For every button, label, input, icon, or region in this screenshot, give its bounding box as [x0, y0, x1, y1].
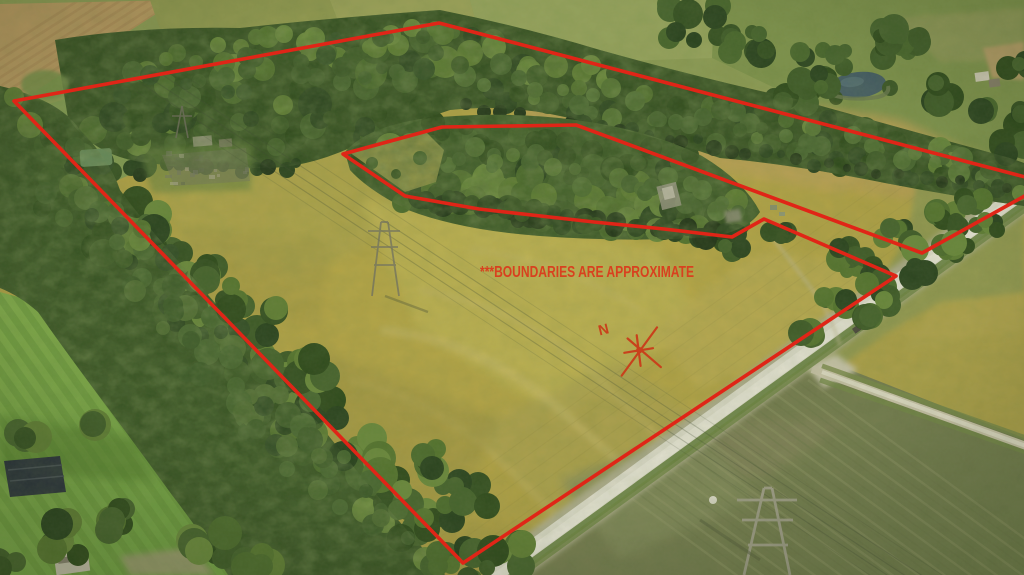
- svg-text:***BOUNDARIES ARE APPROXIMATE: ***BOUNDARIES ARE APPROXIMATE: [480, 264, 694, 281]
